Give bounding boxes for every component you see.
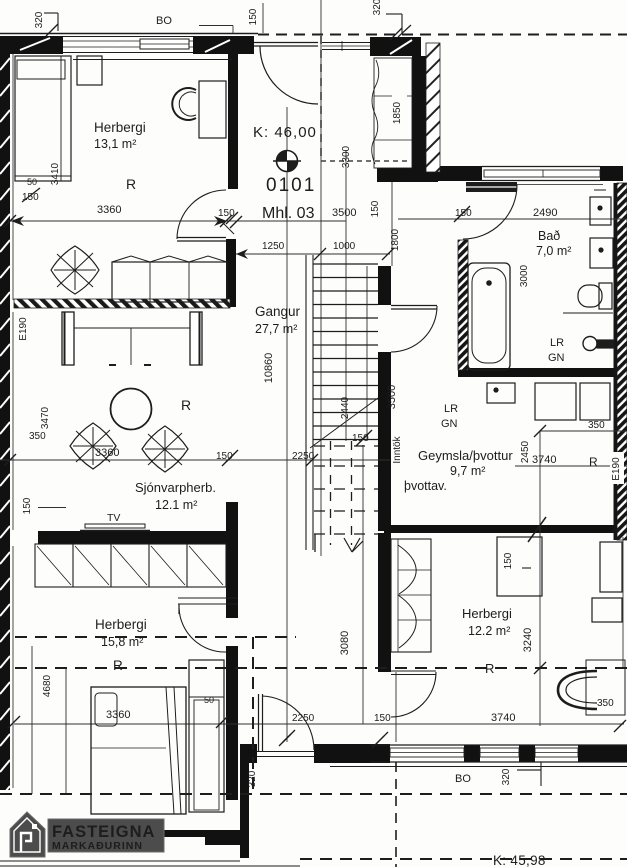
- svg-text:1250: 1250: [262, 241, 285, 252]
- svg-text:3410: 3410: [50, 162, 61, 185]
- svg-text:2440: 2440: [340, 396, 351, 419]
- svg-text:150: 150: [455, 208, 472, 219]
- svg-text:E190: E190: [18, 317, 29, 341]
- svg-text:9,7 m²: 9,7 m²: [450, 464, 485, 478]
- svg-text:1800: 1800: [390, 228, 401, 251]
- svg-text:150: 150: [22, 192, 39, 203]
- svg-text:0101: 0101: [266, 175, 316, 196]
- svg-text:MARKAÐURINN: MARKAÐURINN: [52, 840, 143, 852]
- svg-text:3000: 3000: [519, 264, 530, 287]
- svg-text:3500: 3500: [332, 207, 356, 219]
- svg-text:R: R: [589, 455, 598, 469]
- svg-text:3360: 3360: [95, 447, 119, 459]
- svg-text:Geymsla/þvottur: Geymsla/þvottur: [418, 448, 513, 463]
- svg-text:Gangur: Gangur: [255, 304, 301, 319]
- svg-text:150: 150: [503, 552, 514, 569]
- svg-text:320: 320: [34, 11, 45, 28]
- svg-text:10860: 10860: [263, 353, 275, 384]
- svg-text:K: 45,98: K: 45,98: [493, 853, 546, 867]
- svg-text:GN: GN: [548, 352, 565, 364]
- svg-text:R: R: [485, 661, 494, 676]
- svg-text:þvottav.: þvottav.: [404, 479, 447, 493]
- svg-text:15,8 m²: 15,8 m²: [101, 635, 143, 649]
- svg-text:2490: 2490: [533, 207, 557, 219]
- svg-text:Mhl. 03: Mhl. 03: [262, 205, 315, 222]
- svg-text:1000: 1000: [333, 241, 356, 252]
- svg-text:R: R: [113, 658, 123, 673]
- svg-text:4680: 4680: [42, 674, 53, 697]
- svg-text:R: R: [126, 176, 136, 192]
- svg-text:27,7 m²: 27,7 m²: [255, 322, 297, 336]
- svg-text:1850: 1850: [392, 101, 403, 124]
- svg-text:3740: 3740: [532, 454, 556, 466]
- svg-text:150: 150: [352, 433, 369, 444]
- svg-text:150: 150: [218, 208, 235, 219]
- svg-text:R: R: [181, 397, 191, 413]
- svg-text:2250: 2250: [292, 451, 315, 462]
- svg-text:3300: 3300: [341, 145, 352, 168]
- svg-text:K: 46,00: K: 46,00: [253, 124, 317, 141]
- svg-text:320: 320: [247, 770, 258, 787]
- svg-text:150: 150: [216, 451, 233, 462]
- svg-text:50: 50: [27, 177, 37, 187]
- svg-text:320: 320: [501, 768, 512, 785]
- svg-text:Sjónvarpherb.: Sjónvarpherb.: [135, 480, 216, 495]
- svg-text:350: 350: [588, 420, 605, 431]
- svg-text:E190: E190: [611, 457, 622, 481]
- svg-text:Herbergi: Herbergi: [462, 606, 512, 621]
- svg-text:3360: 3360: [106, 709, 130, 721]
- svg-text:3360: 3360: [97, 204, 121, 216]
- svg-text:150: 150: [374, 713, 391, 724]
- svg-text:Bað: Bað: [538, 229, 560, 243]
- svg-text:13,1 m²: 13,1 m²: [94, 137, 136, 151]
- svg-text:320: 320: [372, 0, 383, 15]
- svg-text:LR: LR: [550, 337, 564, 349]
- svg-text:Herbergi: Herbergi: [95, 617, 147, 632]
- svg-text:LR: LR: [444, 403, 458, 415]
- svg-text:3740: 3740: [491, 712, 515, 724]
- svg-text:GN: GN: [441, 418, 458, 430]
- svg-text:12.2 m²: 12.2 m²: [468, 624, 510, 638]
- svg-text:3470: 3470: [40, 406, 51, 429]
- svg-text:12.1 m²: 12.1 m²: [155, 498, 197, 512]
- svg-text:350: 350: [597, 698, 614, 709]
- svg-text:2450: 2450: [520, 440, 531, 463]
- svg-text:Inntök: Inntök: [392, 435, 403, 463]
- svg-text:350: 350: [29, 431, 46, 442]
- svg-text:50: 50: [204, 695, 214, 705]
- svg-text:TV: TV: [107, 512, 120, 524]
- svg-text:3080: 3080: [339, 631, 351, 655]
- svg-text:BO: BO: [156, 15, 172, 27]
- svg-text:150: 150: [370, 200, 381, 217]
- svg-text:2250: 2250: [292, 713, 315, 724]
- svg-text:BO: BO: [455, 773, 471, 785]
- svg-text:3500: 3500: [386, 385, 398, 409]
- svg-text:7,0 m²: 7,0 m²: [536, 244, 571, 258]
- svg-text:3240: 3240: [522, 628, 534, 652]
- svg-text:FASTEIGNA: FASTEIGNA: [52, 823, 155, 841]
- svg-text:150: 150: [22, 497, 33, 514]
- svg-text:150: 150: [248, 8, 259, 25]
- svg-text:Herbergi: Herbergi: [94, 120, 146, 135]
